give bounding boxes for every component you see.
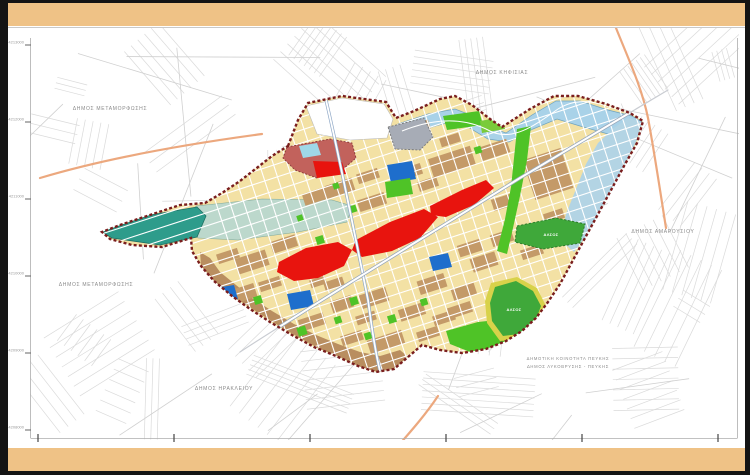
left-tick-label: 4208000 [8, 425, 24, 430]
zone-label-green-zone-south: ΑΛΣΟΣ [507, 307, 522, 312]
municipality-label-metamorfosi-west: ΔΗΜΟΣ ΜΕΤΑΜΟΡΦΩΣΗΣ [59, 282, 134, 288]
left-tick-label: 4211000 [9, 194, 25, 199]
municipality-label-kifisia: ΔΗΜΟΣ ΚΗΦΙΣΙΑΣ [476, 70, 529, 76]
left-tick-label: 4210000 [8, 271, 24, 276]
zone-label-green-zone-east: ΑΛΣΟΣ [544, 232, 559, 237]
left-tick-label: 4213000 [8, 40, 24, 45]
municipality-label-pefki-line2: ΔΗΜΟΣ ΛΥΚΟΒΡΥΣΗΣ - ΠΕΥΚΗΣ [527, 364, 609, 369]
municipality-label-metamorfosi-north: ΔΗΜΟΣ ΜΕΤΑΜΟΡΦΩΣΗΣ [73, 106, 148, 112]
municipality-label-irakleio: ΔΗΜΟΣ ΗΡΑΚΛΕΙΟΥ [195, 386, 253, 392]
left-tick-label: 4209000 [8, 348, 24, 353]
slide-stage: 4213000421200042110004210000420900042080… [0, 0, 750, 475]
map-canvas: 4213000421200042110004210000420900042080… [0, 0, 750, 475]
municipality-label-pefki-line1: ΔΗΜΟΤΙΚΗ ΚΟΙΝΟΤΗΤΑ ΠΕΥΚΗΣ [527, 356, 610, 361]
top-orange-band [8, 3, 745, 26]
zone-white-enclave [306, 98, 393, 140]
bottom-orange-band [8, 448, 745, 471]
municipality-label-amarousio: ΔΗΜΟΣ ΑΜΑΡΟΥΣΙΟΥ [631, 229, 694, 235]
band-divider [8, 27, 745, 28]
left-tick-label: 4212000 [8, 117, 24, 122]
